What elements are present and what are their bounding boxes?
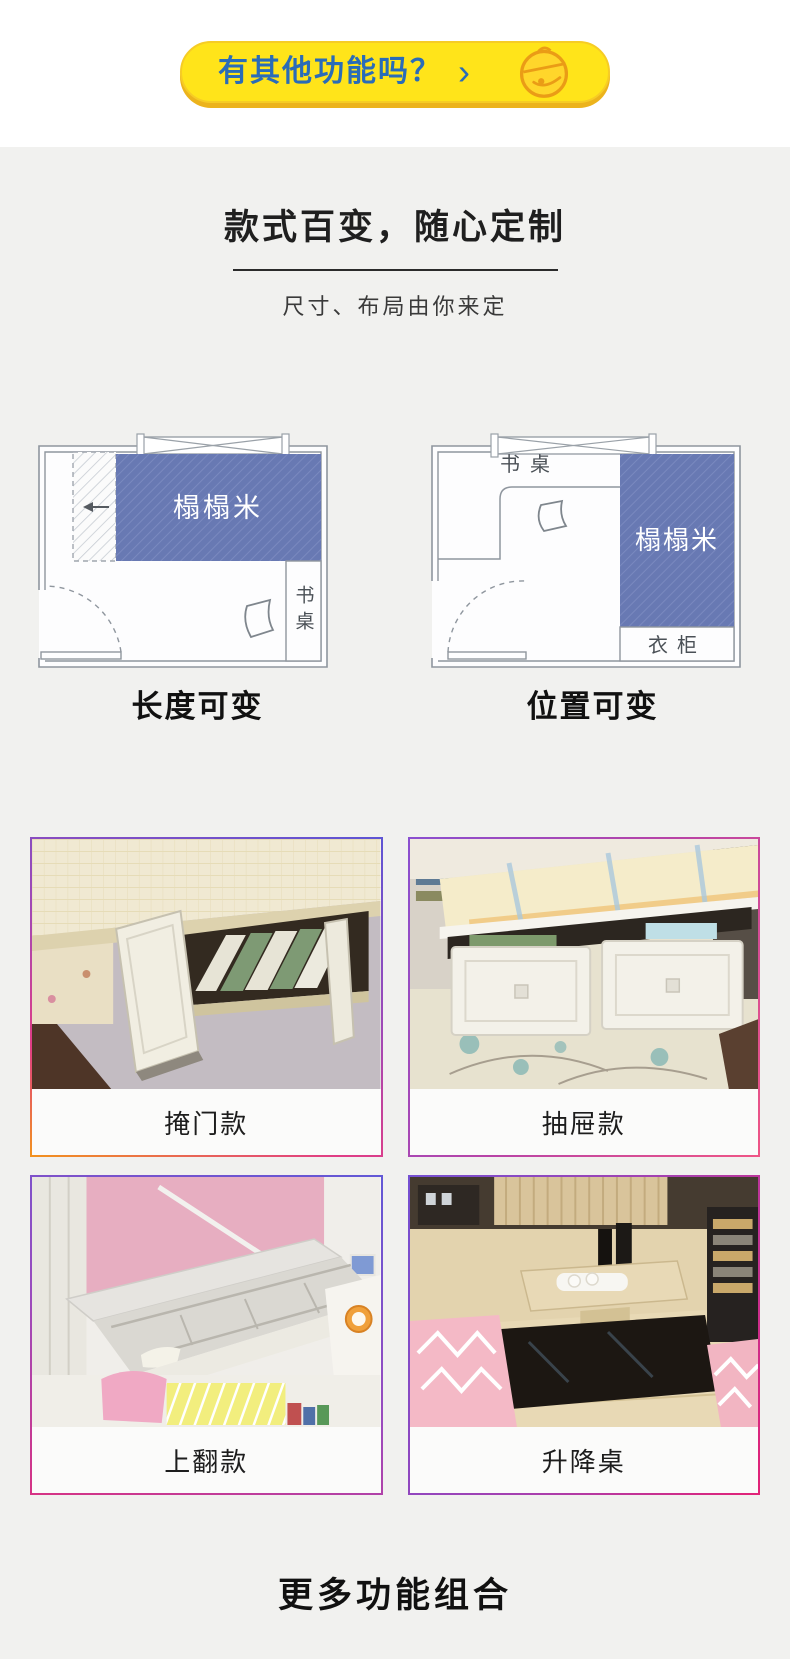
tatami-label: 榻榻米 xyxy=(635,525,719,555)
card-photo xyxy=(410,839,759,1089)
window-icon xyxy=(137,434,289,457)
promo-page: 有其他功能吗？ › 款式百变，随心定制 尺寸、布局由你来定 xyxy=(0,0,790,1659)
card-caption: 升降桌 xyxy=(410,1427,759,1493)
card-photo xyxy=(32,839,381,1089)
bell-icon xyxy=(516,43,572,101)
card-hinged-door-style: 掩门款 xyxy=(30,837,383,1157)
more-features-button[interactable]: 有其他功能吗？ › xyxy=(180,41,610,103)
extension-area xyxy=(73,452,116,561)
tatami-area: 榻榻米 xyxy=(116,454,321,561)
card-lift-table: 升降桌 xyxy=(408,1175,761,1495)
floor-plan-position: 书桌 榻榻米 衣柜 xyxy=(420,409,765,725)
photo-hinged-door-illustration xyxy=(32,839,381,1089)
photo-lift-table-illustration xyxy=(410,1177,759,1427)
card-photo xyxy=(410,1177,759,1427)
chair-icon xyxy=(245,600,273,637)
footer-title: 更多功能组合 xyxy=(0,1567,790,1639)
card-caption: 掩门款 xyxy=(32,1089,381,1155)
title-divider xyxy=(233,269,558,271)
card-drawer-style: 抽屉款 xyxy=(408,837,761,1157)
photo-flip-up-illustration xyxy=(32,1177,381,1427)
plan-caption-position: 位置可变 xyxy=(420,689,765,725)
card-caption: 抽屉款 xyxy=(410,1089,759,1155)
chevron-right-icon: › xyxy=(458,58,470,87)
chair-icon xyxy=(539,501,566,531)
floor-plan-length: 榻榻米 书桌 长度可变 xyxy=(25,409,370,725)
style-cards-grid: 掩门款 xyxy=(30,837,760,1495)
tatami-label: 榻榻米 xyxy=(173,493,263,523)
desk-area: 书桌 xyxy=(286,561,321,661)
floor-plan-left-diagram: 榻榻米 书桌 xyxy=(25,409,370,679)
photo-drawer-illustration xyxy=(410,839,759,1089)
desk-label: 书桌 xyxy=(500,453,560,476)
floor-plans-row: 榻榻米 书桌 长度可变 xyxy=(0,409,790,725)
floor-plan-right-diagram: 书桌 榻榻米 衣柜 xyxy=(420,409,765,679)
customization-section: 款式百变，随心定制 尺寸、布局由你来定 xyxy=(0,147,790,1659)
desk-label: 书桌 xyxy=(293,585,315,637)
wardrobe-label: 衣柜 xyxy=(648,634,706,657)
card-caption: 上翻款 xyxy=(32,1427,381,1493)
plan-caption-length: 长度可变 xyxy=(25,689,370,725)
card-flip-up-style: 上翻款 xyxy=(30,1175,383,1495)
section-subtitle: 尺寸、布局由你来定 xyxy=(0,289,790,321)
section-title: 款式百变，随心定制 xyxy=(0,208,790,248)
header-strip: 有其他功能吗？ › xyxy=(0,0,790,147)
tatami-area: 榻榻米 xyxy=(620,454,734,627)
card-photo xyxy=(32,1177,381,1427)
wardrobe-area: 衣柜 xyxy=(620,627,734,661)
cta-label: 有其他功能吗？ xyxy=(218,57,442,87)
